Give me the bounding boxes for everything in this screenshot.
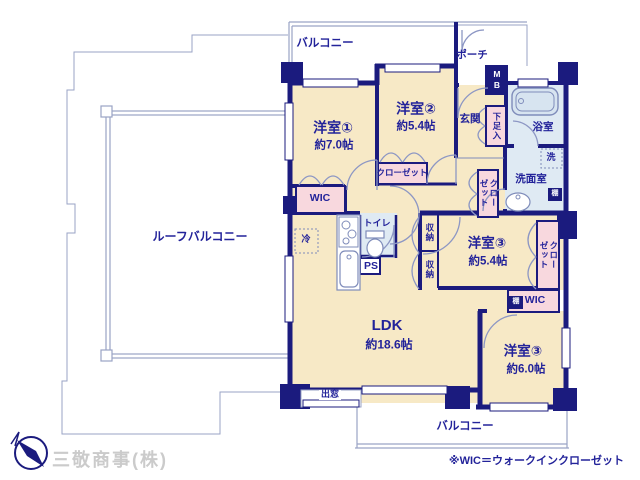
wic-note: ※WIC＝ウォークインクローゼット (449, 452, 624, 468)
window-ldk-left (285, 256, 293, 322)
storage-bottom-label: 収納 (424, 258, 434, 280)
balcony-bottom-label: バルコニー (436, 421, 493, 434)
company-name: 三敬商事(株) (52, 446, 168, 472)
compass-icon (11, 432, 47, 469)
floor-plan-page: ルーフバルコニー バルコニー バルコニー ポーチ 玄関 MB 下足入 浴室 洗 … (0, 0, 640, 480)
window-ldk-bottom (362, 386, 447, 394)
kitchen-sink (340, 251, 358, 287)
window-room3b-bottom (490, 403, 548, 411)
porch-label: ポーチ (456, 50, 488, 62)
ldk-name: LDK (372, 318, 403, 335)
ldk-size: 約18.6帖 (365, 338, 412, 351)
wic-room1-label: WIC (310, 193, 330, 205)
wash-basin (506, 193, 530, 211)
storage-top-label: 収納 (424, 221, 434, 243)
pipe-space-label: PS (364, 261, 378, 273)
wic-room3-label: WIC (525, 295, 545, 307)
room3a-size: 約5.4帖 (469, 256, 508, 269)
roof-balcony-label: ルーフバルコニー (152, 230, 247, 243)
washroom-label: 洗面室 (515, 174, 547, 186)
closet-room3-label: クローゼット (538, 239, 558, 271)
window-room2-top (385, 64, 440, 72)
toilet-tank (366, 231, 384, 238)
window-bath-top (518, 79, 548, 87)
room1-name: 洋室① (313, 120, 353, 135)
bath-label: 浴室 (533, 122, 554, 134)
inner-hall-area (420, 288, 510, 313)
shelf-b-label: 棚 (513, 298, 520, 306)
window-room1-top (303, 79, 358, 87)
closet-hall-label: クローゼット (478, 178, 498, 208)
balcony-top-label: バルコニー (296, 38, 353, 51)
room3b-size: 約6.0帖 (507, 364, 546, 377)
shelf-a-label: 棚 (552, 190, 559, 198)
room3a-name: 洋室③ (468, 237, 506, 252)
meter-box-label: MB (491, 69, 501, 91)
closet-room2-label: クローゼット (376, 168, 427, 177)
bay-window-label: 出窓 (319, 390, 341, 400)
window-room1-left (285, 103, 293, 160)
shoe-box-label: 下足入 (491, 108, 501, 144)
room2-size: 約5.4帖 (397, 121, 436, 134)
entrance-label: 玄関 (460, 114, 481, 126)
toilet-bowl (367, 239, 383, 257)
toilet-label: トイレ (363, 219, 390, 229)
window-room3b-right (562, 328, 570, 368)
washer-label: 洗 (546, 153, 555, 163)
fridge-label: 冷 (301, 235, 310, 245)
room3b-name: 洋室③ (504, 345, 542, 360)
room1-size: 約7.0帖 (315, 140, 354, 153)
room2-name: 洋室② (396, 101, 436, 116)
